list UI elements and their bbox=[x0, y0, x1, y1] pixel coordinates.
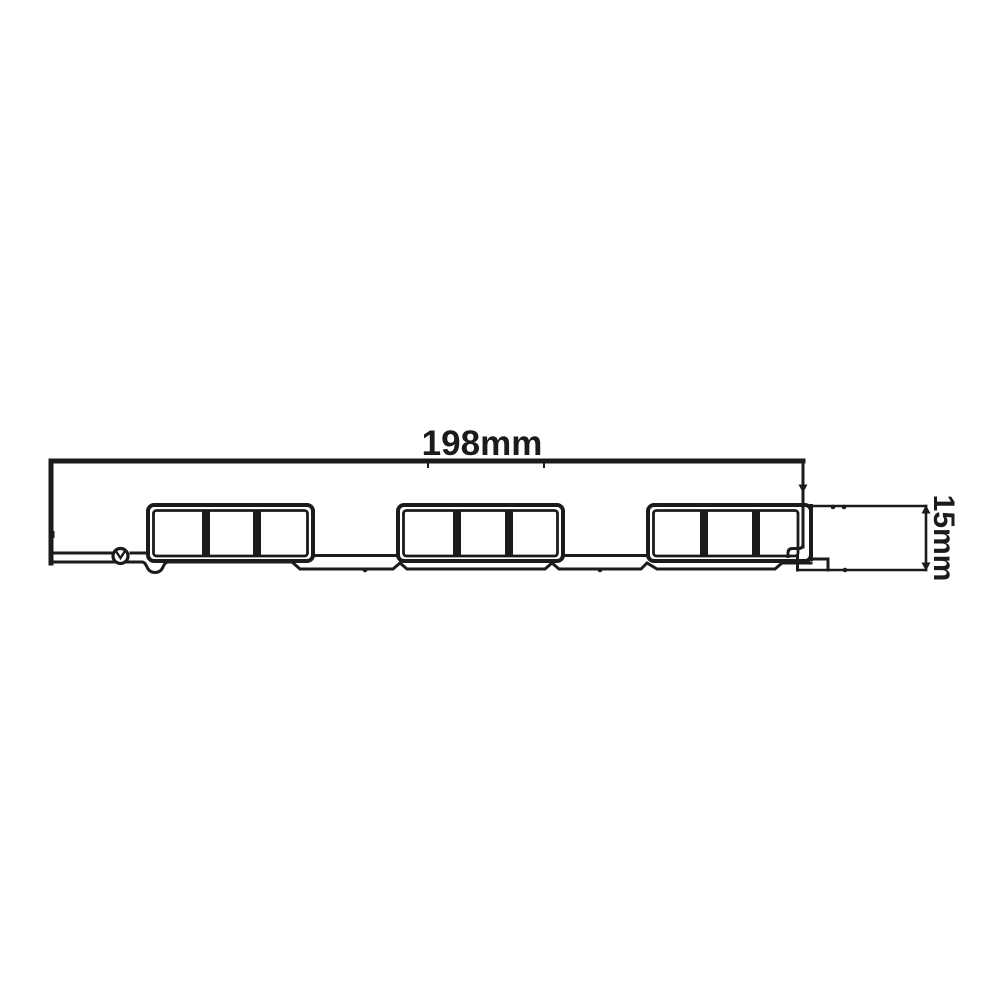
width-dimension-label: 198mm bbox=[422, 424, 543, 463]
chamber-divider bbox=[253, 510, 261, 556]
width-arrow-dot bbox=[800, 484, 805, 489]
chamber-group-outer bbox=[148, 505, 313, 561]
channel-nub bbox=[363, 568, 368, 573]
right-bottom-step bbox=[811, 559, 828, 570]
bottom-outer-line bbox=[51, 562, 811, 573]
height-dimension: 15mm bbox=[798, 495, 961, 582]
profile-cross-section-diagram: 198mm 15mm bbox=[0, 0, 1000, 1000]
extension-arrow-dot bbox=[842, 505, 847, 510]
drawing-page: 198mm 15mm bbox=[0, 0, 1000, 1000]
chamber-divider bbox=[453, 510, 461, 556]
chamber-divider bbox=[505, 510, 513, 556]
chamber-group-outer bbox=[398, 505, 563, 561]
extension-arrow-dot bbox=[831, 505, 836, 510]
extension-arrow-dot bbox=[843, 568, 848, 573]
chamber-divider bbox=[202, 510, 210, 556]
hollow-chamber-group-2 bbox=[398, 505, 563, 561]
chamber-divider bbox=[752, 510, 760, 556]
channel-nub bbox=[598, 568, 603, 573]
hollow-chamber-group-1 bbox=[148, 505, 313, 561]
chamber-divider bbox=[700, 510, 708, 556]
height-dimension-label: 15mm bbox=[927, 495, 960, 582]
